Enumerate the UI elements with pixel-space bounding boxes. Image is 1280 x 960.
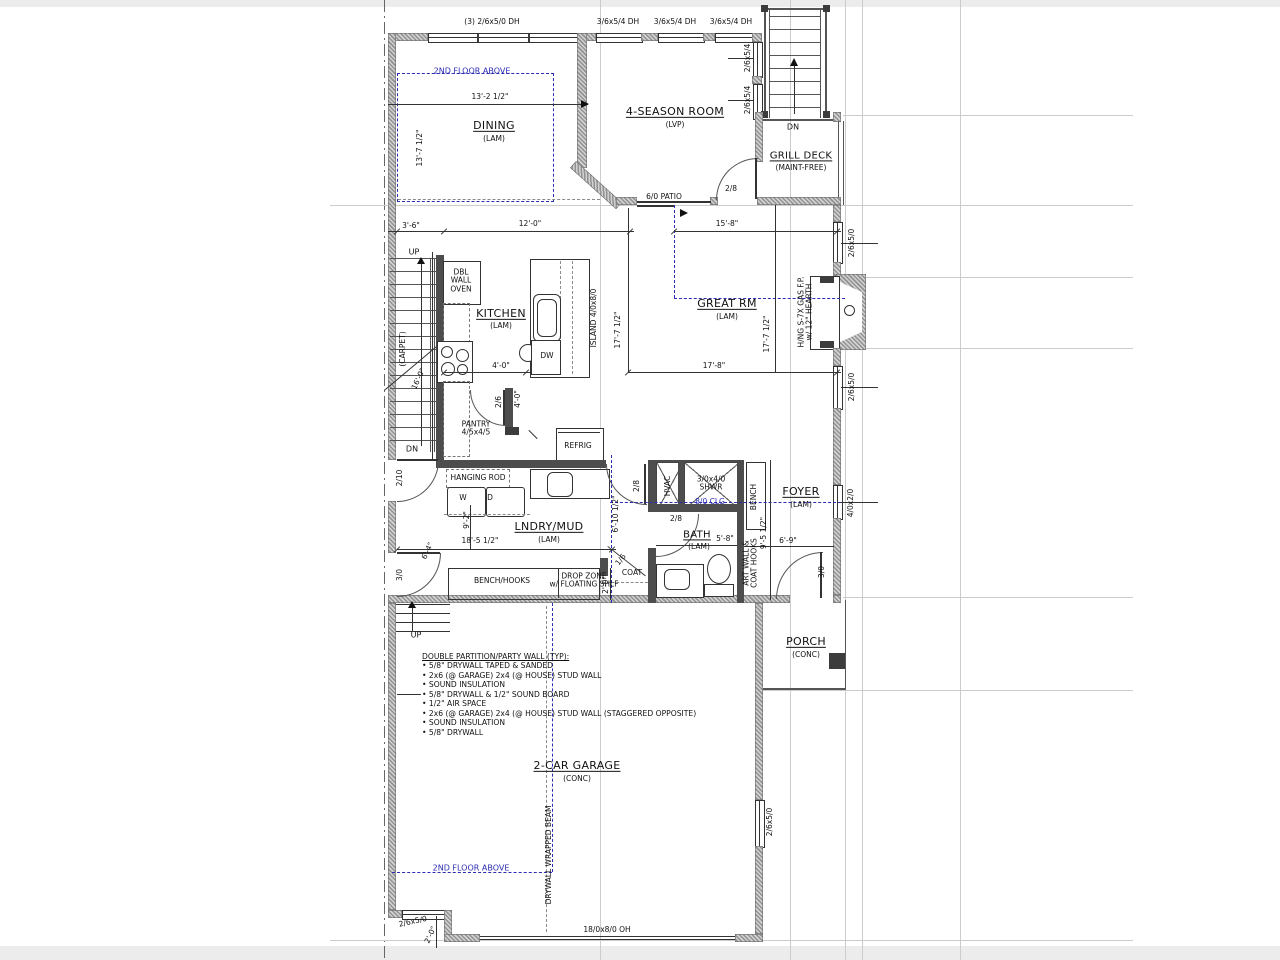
grill-door-leaf <box>755 158 757 199</box>
wall <box>505 388 513 428</box>
window-label: 2/6x5/4 <box>744 86 752 115</box>
bench-hooks-label: BENCH/HOOKS <box>474 577 530 585</box>
stair-rail <box>434 258 435 452</box>
note-line: • 5/8" DRYWALL TAPED & SANDED <box>422 661 696 670</box>
up-label: UP <box>409 249 420 258</box>
grid-line <box>862 277 1133 278</box>
fireplace-jamb <box>820 276 834 283</box>
wall <box>833 112 841 122</box>
deck-arrow-up <box>790 58 798 66</box>
door-label: 2/8 <box>633 480 641 492</box>
dim-label: 12'-0" <box>519 220 542 228</box>
patio-door <box>637 205 675 207</box>
room-finish: (LAM) <box>716 313 738 321</box>
window-label: 3/6x5/4 DH <box>597 18 639 26</box>
dim-label: 17'-7 1/2" <box>763 316 771 353</box>
room-label-4season: 4-SEASON ROOM <box>626 106 724 118</box>
hanging-rod-label: HANGING ROD <box>450 474 505 482</box>
deck-rail <box>825 8 827 118</box>
wall <box>755 112 763 162</box>
dim-line <box>674 231 841 232</box>
room-label-lndry: LNDRY/MUD <box>515 521 584 533</box>
dn-label: DN <box>406 446 418 455</box>
fireplace-jamb <box>820 341 834 348</box>
room-label-kitchen: KITCHEN <box>476 308 526 320</box>
room-finish: (LVP) <box>666 121 685 129</box>
room-label-grill-deck: GRILL DECK <box>770 150 833 161</box>
washer-label: W <box>459 494 466 502</box>
dim-label: 13'-7 1/2" <box>416 130 424 167</box>
door-label: 2/8 <box>670 515 682 523</box>
sheet-edge-top <box>0 0 1280 7</box>
art-wall-label: ART WALL & COAT HOOKS <box>743 538 760 588</box>
deck-rail <box>820 8 821 118</box>
dim-label: 18'-5 1/2" <box>462 537 499 545</box>
wall <box>833 518 841 595</box>
porch-edge <box>763 688 846 690</box>
step <box>390 604 450 605</box>
island-cab-line <box>572 261 573 374</box>
deck-post <box>761 5 768 12</box>
note-line: • 5/8" DRYWALL <box>422 728 696 737</box>
steps-arrow-line <box>412 608 413 632</box>
grid-line <box>960 0 961 960</box>
burner <box>441 346 453 358</box>
window-label: 4/0x2/0 <box>847 489 855 518</box>
coat-label: COAT <box>622 569 642 577</box>
entry-door-leaf <box>397 552 440 554</box>
ceiling-label: 8/0 CLG <box>695 498 725 506</box>
dim-label: 5'-8" <box>716 535 734 543</box>
note-line: • 2x6 (@ GARAGE) 2x4 (@ HOUSE) STUD WALL <box>422 671 696 680</box>
stair-arrow-up <box>417 257 425 264</box>
stair-rail <box>430 258 431 452</box>
note-line: • SOUND INSULATION <box>422 718 696 727</box>
dim-label: 9'-2" <box>463 511 471 529</box>
dryer-label: D <box>487 494 493 502</box>
wall <box>833 595 841 603</box>
wall <box>388 910 402 918</box>
party-wall-notes: DOUBLE PARTITION/PARTY WALL (TYP): • 5/8… <box>422 652 696 737</box>
window-label: 3/6x5/4 DH <box>654 18 696 26</box>
window <box>596 33 643 43</box>
room-label-garage: 2-CAR GARAGE <box>534 760 621 772</box>
grid-line <box>843 597 1133 598</box>
second-floor-label: 2ND FLOOR ABOVE <box>433 865 510 874</box>
wall <box>436 460 606 468</box>
toilet-tank <box>704 584 734 597</box>
deck-arrow-line <box>794 66 795 114</box>
patio-door-label: 6/0 PATIO <box>646 193 682 201</box>
wall <box>505 427 519 435</box>
room-finish: (LAM) <box>688 543 710 551</box>
carpet-label: (CARPET) <box>399 331 407 366</box>
window-label: (3) 2/6x5/0 DH <box>464 18 519 26</box>
deck-rail <box>769 8 770 118</box>
garage-door-label: 18/0x8/0 OH <box>583 926 630 934</box>
dim-line <box>388 104 588 105</box>
grid-line <box>330 205 1133 206</box>
hearth <box>810 276 840 350</box>
porch-post <box>829 653 845 669</box>
window-label: 2/6x5/4 <box>744 44 752 73</box>
grill-door-arc <box>716 158 758 200</box>
wall <box>388 603 396 910</box>
door-label: 2/10 <box>396 470 404 487</box>
step <box>390 622 450 623</box>
step <box>390 613 450 614</box>
note-line: • 5/8" DRYWALL & 1/2" SOUND BOARD <box>422 690 696 699</box>
steps-arrow-up <box>408 601 416 608</box>
dn-label: DN <box>787 124 799 133</box>
grid-line <box>862 348 1133 349</box>
room-finish: (LAM) <box>790 501 812 509</box>
wall <box>757 197 841 205</box>
window <box>753 42 763 78</box>
door-label: 2/6 <box>495 396 503 408</box>
door-label: 2/8 <box>725 185 737 193</box>
window-label: 2/6x5/0 <box>766 808 774 837</box>
dim-label: 3'-6" <box>402 222 420 230</box>
wall <box>616 197 637 205</box>
wall <box>648 548 656 603</box>
window <box>755 800 765 848</box>
garage-door <box>480 939 735 940</box>
second-floor-label: 2ND FLOOR ABOVE <box>434 68 511 77</box>
door-label: 1/6 <box>614 553 628 568</box>
dim-line <box>628 372 841 373</box>
window-triple <box>428 33 580 43</box>
room-finish: (CONC) <box>792 651 820 659</box>
dim-label: 6'-10 1/2" <box>612 496 620 533</box>
grid-line <box>790 0 791 960</box>
counter-slash <box>528 430 537 439</box>
wall <box>755 846 763 934</box>
wall <box>648 460 656 512</box>
up-label: UP <box>411 632 422 641</box>
stair-arrow-line <box>421 264 422 446</box>
room-label-porch: PORCH <box>786 636 826 648</box>
dim-line <box>775 205 776 372</box>
party-wall-notes-title: DOUBLE PARTITION/PARTY WALL (TYP): <box>422 652 696 661</box>
floor-above-line <box>388 199 600 200</box>
door-label: 3/0 <box>396 569 404 581</box>
note-leader <box>397 694 421 695</box>
wall <box>833 205 841 222</box>
dim-label: 4'-0" <box>514 390 522 408</box>
note-line: • 1/2" AIR SPACE <box>422 699 696 708</box>
hall-door-leaf <box>644 464 646 504</box>
dim-line <box>444 372 530 373</box>
sheet-edge-bottom <box>0 946 1280 960</box>
burner <box>457 364 468 375</box>
dim-label: 17'-7 1/2" <box>614 312 622 349</box>
kitchen-sink-basin <box>537 299 557 337</box>
grid-line <box>763 690 1133 691</box>
note-line: • 2x6 (@ GARAGE) 2x4 (@ HOUSE) STUD WALL… <box>422 709 696 718</box>
grid-line <box>845 0 846 960</box>
burner <box>456 349 469 362</box>
room-label-dining: DINING <box>473 120 515 132</box>
room-label-foyer: FOYER <box>782 486 819 498</box>
beam-label: DRYWALL WRAPPED BEAM <box>545 806 553 905</box>
kitchen-counter <box>443 303 470 343</box>
garage-door <box>480 936 735 937</box>
door-label: 3/0 <box>818 566 826 578</box>
dim-line <box>388 231 634 232</box>
porch-edge <box>845 600 846 690</box>
wall <box>755 603 763 800</box>
laundry-sink <box>547 472 573 497</box>
island-label: ISLAND 4/0x8/0 <box>590 289 598 348</box>
deck-post <box>823 5 830 12</box>
patio-door <box>637 201 711 203</box>
refrigerator-line <box>558 432 600 433</box>
wall <box>735 934 763 942</box>
wall <box>641 33 658 41</box>
second-floor-line <box>674 205 675 298</box>
shower-label: 3/0x4/0 SHWR <box>697 476 726 493</box>
dim-line <box>770 460 771 600</box>
room-finish: (MAINT-FREE) <box>776 164 827 172</box>
wall <box>833 348 841 366</box>
property-line <box>384 0 385 960</box>
drop-zone-label: DROP ZONE w/ FLOATING SHLF <box>549 573 618 590</box>
oven-label: DBL WALL OVEN <box>450 268 471 293</box>
room-finish: (LAM) <box>483 135 505 143</box>
room-finish: (LAM) <box>538 536 560 544</box>
pantry-door-leaf <box>503 390 505 425</box>
dim-label: 13'-2 1/2" <box>472 93 509 101</box>
pantry-label: PANTRY 4/5x4/5 <box>462 421 491 438</box>
wall-angled <box>570 161 622 209</box>
dim-label: 6'-9" <box>779 537 797 545</box>
wall <box>703 33 715 41</box>
toilet-bowl <box>707 554 731 584</box>
wall <box>444 934 480 942</box>
dim-label: 4'-0" <box>492 362 510 370</box>
closet-front-line <box>444 514 530 515</box>
deck-rail <box>764 8 766 118</box>
wall <box>752 33 762 42</box>
deck-post <box>823 111 830 118</box>
window <box>658 33 705 43</box>
wall <box>752 76 762 84</box>
grill-deck-rail <box>843 121 844 205</box>
dim-arrow <box>581 100 589 108</box>
dim-label: 17'-8" <box>703 362 726 370</box>
wall <box>388 501 396 553</box>
window-label: 2/6x5/0 <box>848 229 856 258</box>
room-label-bath: BATH <box>683 529 711 540</box>
grid-line <box>843 115 1133 116</box>
patio-arrow <box>680 209 688 217</box>
deck-rail <box>764 8 827 10</box>
fireplace-vent <box>844 305 855 316</box>
window-label: 2/6x5/0 <box>848 373 856 402</box>
grill-deck-rail <box>838 121 839 205</box>
hvac-label: HVAC <box>664 476 672 497</box>
room-label-great-rm: GREAT RM <box>697 298 757 310</box>
room-finish: (LAM) <box>490 322 512 330</box>
dim-line <box>432 252 433 460</box>
dim-label: 15'-8" <box>716 220 739 228</box>
refrigerator-label: REFRIG <box>564 442 592 450</box>
floor-plan-sheet: (3) 2/6x5/0 DH 3/6x5/4 DH 3/6x5/4 DH 3/6… <box>0 0 1280 960</box>
grid-line <box>862 0 863 960</box>
fireplace-label: H/NG S-7X GAS F.P. w/ 12" HEARTH <box>798 276 815 347</box>
room-finish: (CONC) <box>563 775 591 783</box>
bench-label: BENCH <box>750 484 758 510</box>
dishwasher-label: DW <box>540 352 553 360</box>
note-line: • SOUND INSULATION <box>422 680 696 689</box>
wall <box>833 408 841 485</box>
window-label: 3/6x5/4 DH <box>710 18 752 26</box>
deck-edge <box>763 119 838 121</box>
dim-label: 9'-5 1/2" <box>760 517 768 549</box>
vanity-sink <box>664 569 690 590</box>
